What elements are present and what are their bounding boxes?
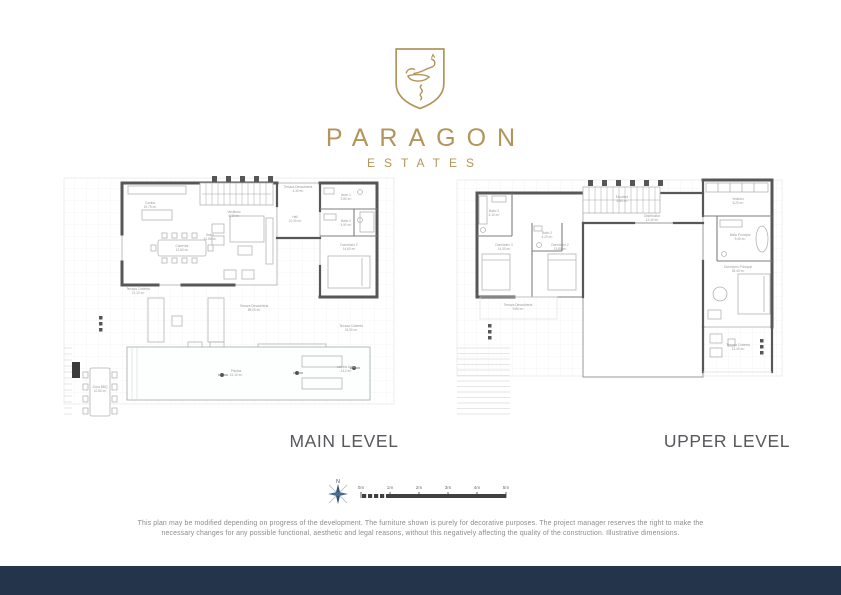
room-area: 89,00 m² — [248, 308, 261, 312]
room-area: 4,30 m² — [293, 189, 304, 193]
room-area: 2,80 m² — [341, 197, 352, 201]
room-area: 9,40 m² — [735, 237, 746, 241]
room-area: 9,80 m² — [513, 307, 524, 311]
room-area: 12,40 m² — [732, 347, 745, 351]
swan-icon — [406, 55, 435, 100]
scale-bar-graphic — [361, 492, 506, 498]
room-area: 12,60 m² — [176, 248, 189, 252]
brochure-page: PARAGON ESTATES — [0, 0, 841, 595]
scale-tick-label: 1m — [387, 485, 394, 490]
main-level-title: MAIN LEVEL — [289, 431, 398, 452]
room-area: 14,30 m² — [498, 247, 511, 251]
room-area: 24,90 m² — [345, 328, 358, 332]
upper-level-title: UPPER LEVEL — [664, 431, 790, 452]
paragon-shield-logo — [391, 46, 449, 112]
room-area: 28,40 m² — [732, 269, 745, 273]
upper-level-floorplan: Baño 3 4,10 m² Dormitorio 3 14,30 m² Bañ… — [452, 176, 792, 422]
room-area: 14,60 m² — [343, 247, 356, 251]
scale-bar: 0m 1m 2m 3m 4m 5m — [356, 482, 512, 502]
room-area: 10,30 m² — [289, 219, 302, 223]
disclaimer-text: This plan may be modified depending on p… — [0, 519, 841, 538]
scale-tick-label: 4m — [474, 485, 481, 490]
room-area: 41,80 m² — [204, 237, 217, 241]
room-area: 4,90 m² — [341, 223, 352, 227]
footer-bar — [0, 566, 841, 595]
brand-tagline: ESTATES — [0, 156, 841, 170]
room-area: 10,50 m² — [94, 389, 107, 393]
pool — [127, 347, 370, 400]
disclaimer-line-2: necessary changes for any possible funct… — [0, 529, 841, 539]
disclaimer-line-1: This plan may be modified depending on p… — [0, 519, 841, 529]
scale-tick-label: 3m — [445, 485, 452, 490]
room-area: 21,10 m² — [132, 291, 145, 295]
compass-rose-icon: N — [326, 476, 350, 506]
room-area: 4,20 m² — [542, 235, 553, 239]
stairs — [200, 183, 273, 205]
scale-tick-label: 0m — [358, 485, 365, 490]
room-area: 13,80 m² — [554, 247, 567, 251]
brand-wordmark: PARAGON — [0, 124, 841, 153]
scale-tick-label: 2m — [416, 485, 423, 490]
main-level-floorplan: Vestíbulo 6,40 m² Cocina 19,75 m² Comedo… — [62, 176, 402, 420]
room-area: 6,20 m² — [733, 201, 744, 205]
room-area: 19,75 m² — [144, 205, 157, 209]
room-area: 6,80 m² — [617, 199, 628, 203]
room-area: 6,40 m² — [229, 214, 240, 218]
room-area: 12,40 m² — [646, 218, 659, 222]
room-area: 4,10 m² — [489, 213, 500, 217]
room-area: 14,2 m² — [341, 369, 352, 373]
scale-tick-label: 5m — [503, 485, 510, 490]
room-area: 41,10 m² — [230, 373, 243, 377]
